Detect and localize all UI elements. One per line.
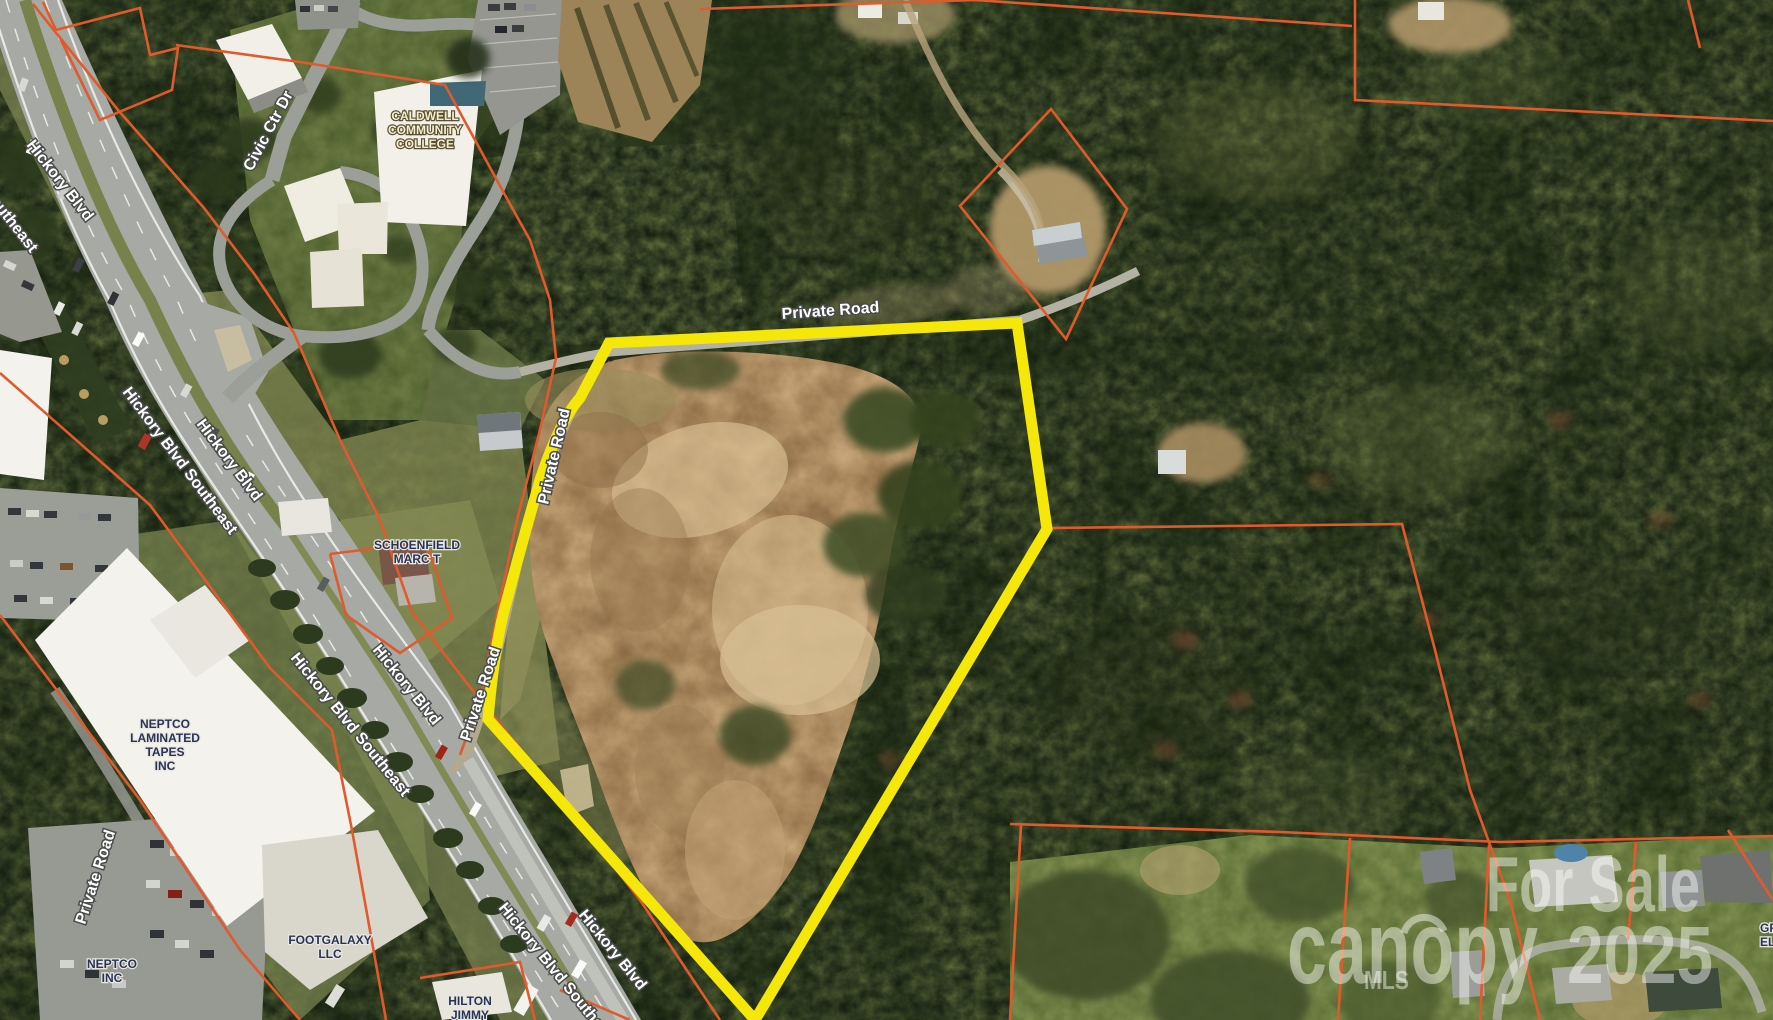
svg-text:NEPTCO: NEPTCO <box>140 717 190 731</box>
svg-text:SCHOENFIELD: SCHOENFIELD <box>374 538 460 552</box>
svg-text:GR: GR <box>1760 921 1773 935</box>
svg-text:HILTON: HILTON <box>448 994 492 1008</box>
svg-text:canopy: canopy <box>1287 890 1538 1006</box>
svg-text:MARC T: MARC T <box>394 552 441 566</box>
svg-text:FOOTGALAXY: FOOTGALAXY <box>288 933 371 947</box>
svg-text:CALDWELL: CALDWELL <box>391 109 458 123</box>
svg-text:TAPES: TAPES <box>145 745 184 759</box>
svg-text:EL: EL <box>1760 935 1773 949</box>
svg-text:LLC: LLC <box>318 947 342 961</box>
svg-text:INC: INC <box>155 759 176 773</box>
svg-text:INC: INC <box>102 971 123 985</box>
svg-text:NEPTCO: NEPTCO <box>87 957 137 971</box>
svg-text:COMMUNITY: COMMUNITY <box>388 123 462 137</box>
svg-text:COLLEGE: COLLEGE <box>396 137 454 151</box>
svg-text:LAMINATED: LAMINATED <box>130 731 200 745</box>
svg-text:2025: 2025 <box>1567 910 1713 1001</box>
svg-text:MLS: MLS <box>1364 965 1409 995</box>
svg-text:JIMMY: JIMMY <box>451 1008 489 1020</box>
